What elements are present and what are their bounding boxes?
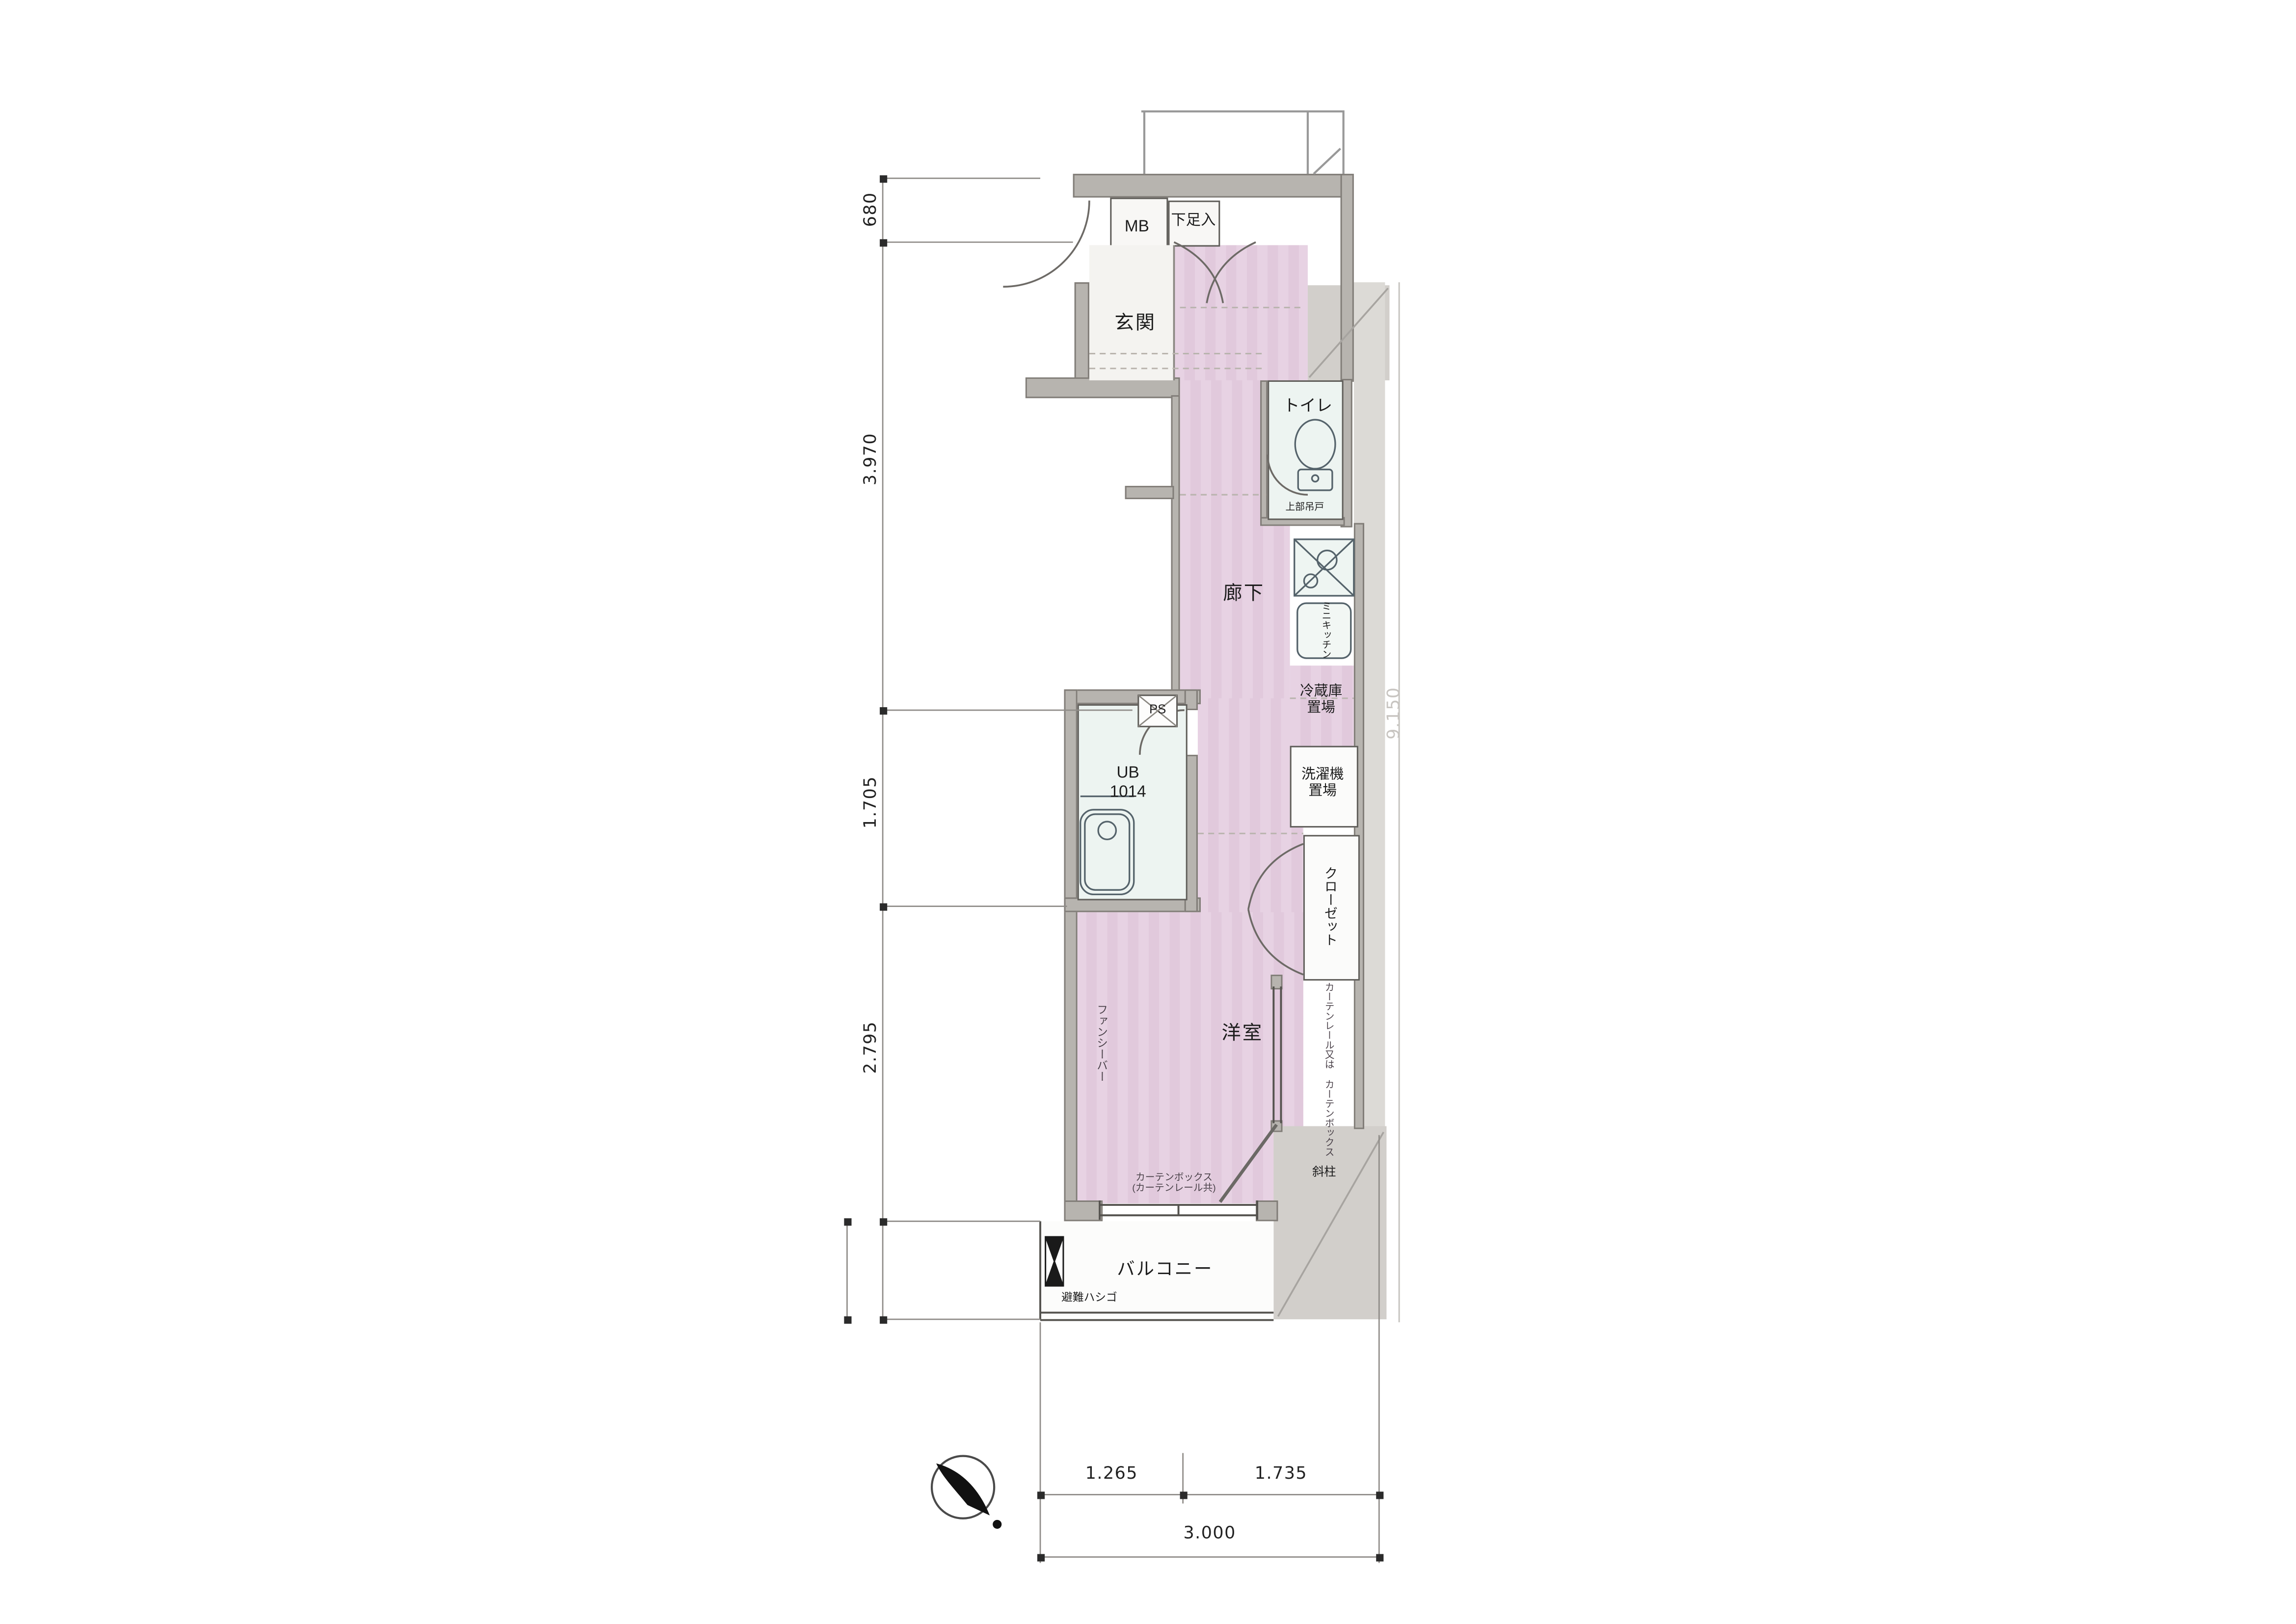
dim-left-680: 680 — [861, 192, 881, 227]
closet-label: クローゼット — [1323, 866, 1338, 946]
dim-left-3970: 3.970 — [861, 433, 881, 485]
unit-bath-line1: UB — [1116, 764, 1139, 782]
dimension-ticks — [844, 175, 1383, 1561]
shoe-door-arc-left — [1174, 242, 1223, 303]
dim-bottom-1265: 1.265 — [1085, 1464, 1138, 1484]
toilet-bowl-icon — [1295, 420, 1335, 469]
kitchen-unit-label: ミニキッチン — [1319, 601, 1330, 659]
window-balcony — [1100, 1200, 1257, 1220]
toilet-tank-icon — [1298, 470, 1332, 490]
escape-ladder-icon — [1045, 1236, 1064, 1287]
washer-space-line2: 置場 — [1308, 783, 1337, 799]
closet-door-arc-bottom — [1248, 909, 1303, 975]
dimension-lines — [847, 178, 1379, 1563]
dim-bottom-total: 3.000 — [1184, 1523, 1236, 1543]
compass-icon — [932, 1456, 1001, 1529]
fridge-space-label: 冷蔵庫 置場 — [1300, 685, 1342, 718]
toilet-door-arc — [1268, 454, 1308, 495]
fridge-space-line1: 冷蔵庫 — [1300, 684, 1342, 700]
plan-linework — [0, 0, 2296, 1624]
slant-pillar-label: 斜柱 — [1312, 1166, 1336, 1179]
window-side — [1273, 986, 1281, 1123]
dim-left-2795: 2.795 — [861, 1021, 881, 1074]
balcony-label: バルコニー — [1117, 1260, 1213, 1280]
entrance-label: 玄関 — [1114, 313, 1156, 335]
washer-space-label: 洗濯機 置場 — [1301, 768, 1344, 800]
curtain-note-h-line1: カーテンボックス — [1135, 1173, 1213, 1183]
shoe-cabinet-label: 下足入 — [1171, 213, 1216, 230]
curtain-note-v-col1: カーテンレール又は — [1322, 982, 1332, 1069]
fancy-bar-note: ファンシーバー — [1095, 1004, 1107, 1082]
fridge-space-line2: 置場 — [1307, 700, 1335, 716]
toilet-upper-cabinet-note: 上部吊戸 — [1286, 503, 1324, 514]
common-corridor-outline — [1141, 111, 1344, 174]
western-room-label: 洋室 — [1221, 1023, 1263, 1045]
toilet-label: トイレ — [1283, 398, 1332, 416]
washer-space-line1: 洗濯機 — [1301, 767, 1344, 783]
closet-door-arc-top — [1248, 844, 1303, 909]
curtain-note-h-line2: (カーテンレール共) — [1132, 1184, 1216, 1195]
shoe-door-arc-right — [1207, 242, 1256, 303]
corridor-label: 廊下 — [1223, 583, 1265, 605]
curtain-note-bottom: カーテンボックス (カーテンレール共) — [1132, 1173, 1216, 1195]
slant-pillar-wall — [1220, 1125, 1276, 1202]
pipe-shaft-label: PS — [1149, 703, 1166, 718]
entrance-door-arc — [1003, 201, 1089, 287]
curtain-note-v-col2: カーテンボックス — [1322, 1079, 1332, 1156]
unit-bath-line2: 1014 — [1110, 783, 1146, 800]
dim-left-1705: 1.705 — [861, 776, 881, 828]
dim-bottom-1735: 1.735 — [1255, 1464, 1307, 1484]
floor-plan-canvas: MB 下足入 玄関 廊下 トイレ 上部吊戸 ミニキッチン 冷蔵庫 置場 PS U… — [0, 0, 2296, 1624]
unit-bath-label: UB 1014 — [1110, 764, 1146, 802]
escape-ladder-label: 避難ハシゴ — [1061, 1292, 1117, 1305]
dim-right-total: 9.150 — [1384, 687, 1404, 739]
curtain-note-vertical: カーテンレール又は カーテンボックス — [1322, 982, 1333, 1145]
meter-box-label: MB — [1125, 218, 1149, 237]
